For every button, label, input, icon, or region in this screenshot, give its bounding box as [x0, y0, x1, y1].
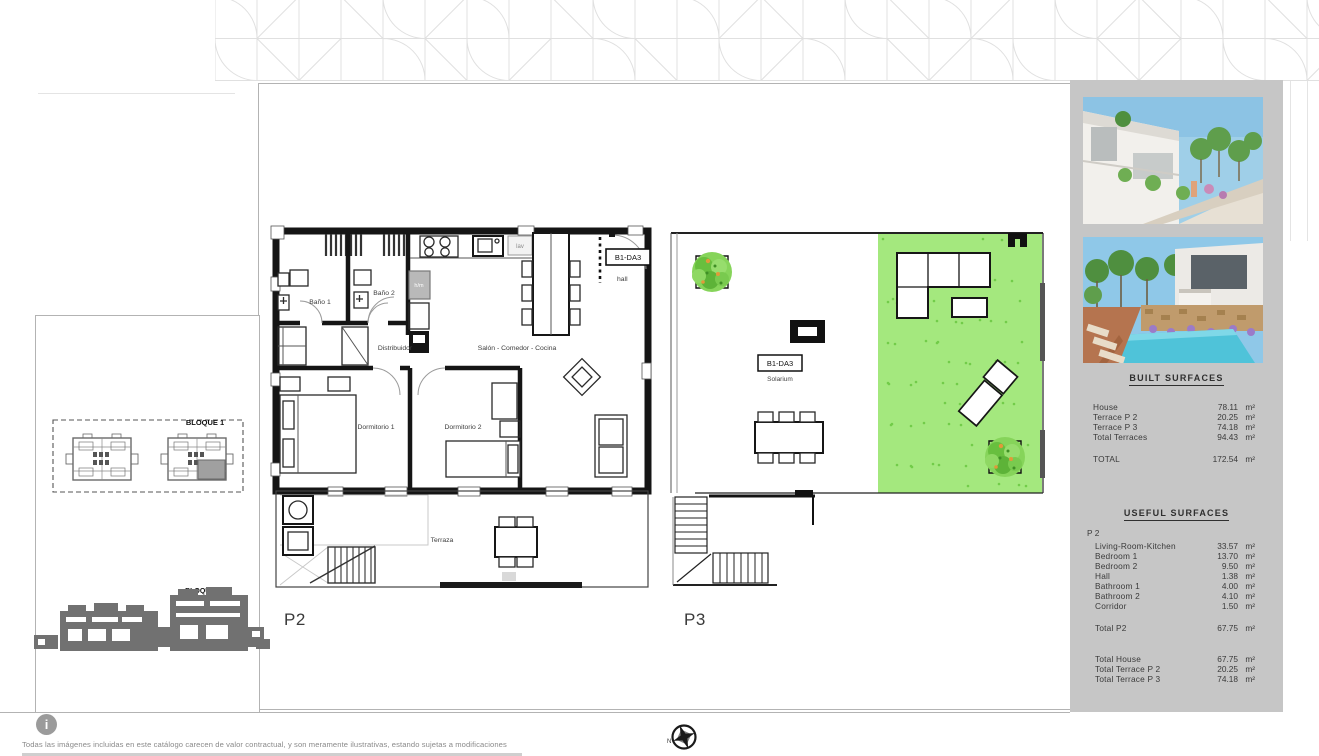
- distribuidor-label: Distribuidor: [378, 345, 413, 352]
- sidebar: BUILT SURFACES House78.11m² Terrace P 22…: [1070, 80, 1283, 712]
- table-row: Hall1.38m²: [1095, 571, 1255, 581]
- table-row: Bedroom 113.70m²: [1095, 551, 1255, 561]
- table-row: Bathroom 24.10m²: [1095, 591, 1255, 601]
- p2-plan-title: P2: [284, 610, 306, 630]
- useful-surfaces-table: Living-Room-Kitchen33.57m² Bedroom 113.7…: [1095, 541, 1255, 633]
- left-faint-line: [38, 93, 235, 94]
- disclaimer-text: Todas las imágenes incluidas en este cat…: [22, 740, 562, 749]
- table-total-row: Total House67.75m²: [1095, 654, 1255, 664]
- render-photo-exterior: [1083, 97, 1263, 224]
- bano2-label: Baño 2: [373, 290, 395, 297]
- salon-label: Salón - Comedor - Cocina: [478, 345, 557, 352]
- bano1-label: Baño 1: [309, 299, 331, 306]
- table-row: Total Terraces94.43m²: [1093, 432, 1255, 442]
- built-surfaces-table: House78.11m² Terrace P 220.25m² Terrace …: [1093, 402, 1255, 464]
- elevation-bloque1: BLOQUE1: [30, 575, 270, 660]
- dormitorio1-label: Dormitorio 1: [357, 424, 394, 431]
- table-row: Bedroom 29.50m²: [1095, 561, 1255, 571]
- totals-table: Total House67.75m² Total Terrace P 220.2…: [1095, 654, 1255, 684]
- table-row: Living-Room-Kitchen33.57m²: [1095, 541, 1255, 551]
- terraza-label: Terraza: [431, 537, 454, 544]
- table-row: Bathroom 14.00m²: [1095, 581, 1255, 591]
- pattern-tail-line: [1290, 81, 1291, 241]
- floorplan-p3: B1-DA3 Solarium: [665, 225, 1055, 600]
- info-icon: i: [36, 714, 57, 735]
- built-surfaces-title: BUILT SURFACES: [1070, 373, 1283, 383]
- p3-unit-tag: B1-DA3: [767, 359, 793, 368]
- pattern-tail-line: [1307, 81, 1308, 241]
- catalog-sheet: BLOQUE 1: [0, 0, 1319, 756]
- render-photo-pool: [1083, 237, 1263, 363]
- table-row: Terrace P 220.25m²: [1093, 412, 1255, 422]
- footer-rule: [0, 712, 1070, 713]
- table-row: House78.11m²: [1093, 402, 1255, 412]
- compass-icon: N: [658, 720, 702, 754]
- table-row: Corridor1.50m²: [1095, 601, 1255, 611]
- table-total-row: Total Terrace P 374.18m²: [1095, 674, 1255, 684]
- solarium-label: Solarium: [767, 376, 793, 383]
- hm-label: h/m: [414, 283, 424, 289]
- p3-plan-title: P3: [684, 610, 706, 630]
- dormitorio2-label: Dormitorio 2: [444, 424, 481, 431]
- useful-group-label: P 2: [1087, 528, 1099, 538]
- hall-label: hall: [617, 276, 628, 283]
- useful-surfaces-title: USEFUL SURFACES: [1070, 508, 1283, 518]
- table-subtotal-row: Total P267.75m²: [1095, 623, 1255, 633]
- compass-north-label: N: [667, 739, 671, 745]
- site-plan-bloque1: BLOQUE 1: [45, 410, 250, 500]
- tree-planter: [985, 437, 1025, 477]
- floorplan-p2: lav h/m B1-DA3 hall: [270, 225, 660, 600]
- tree-planter: [692, 252, 732, 292]
- bloque1-plan-label: BLOQUE 1: [186, 418, 224, 427]
- table-total-row: TOTAL172.54m²: [1093, 454, 1255, 464]
- table-row: Terrace P 374.18m²: [1093, 422, 1255, 432]
- p2-unit-tag: B1-DA3: [615, 253, 641, 262]
- decorative-arc-pattern: [215, 0, 1319, 81]
- table-total-row: Total Terrace P 220.25m²: [1095, 664, 1255, 674]
- lav-label: lav: [516, 244, 524, 250]
- highlighted-unit: [198, 460, 225, 479]
